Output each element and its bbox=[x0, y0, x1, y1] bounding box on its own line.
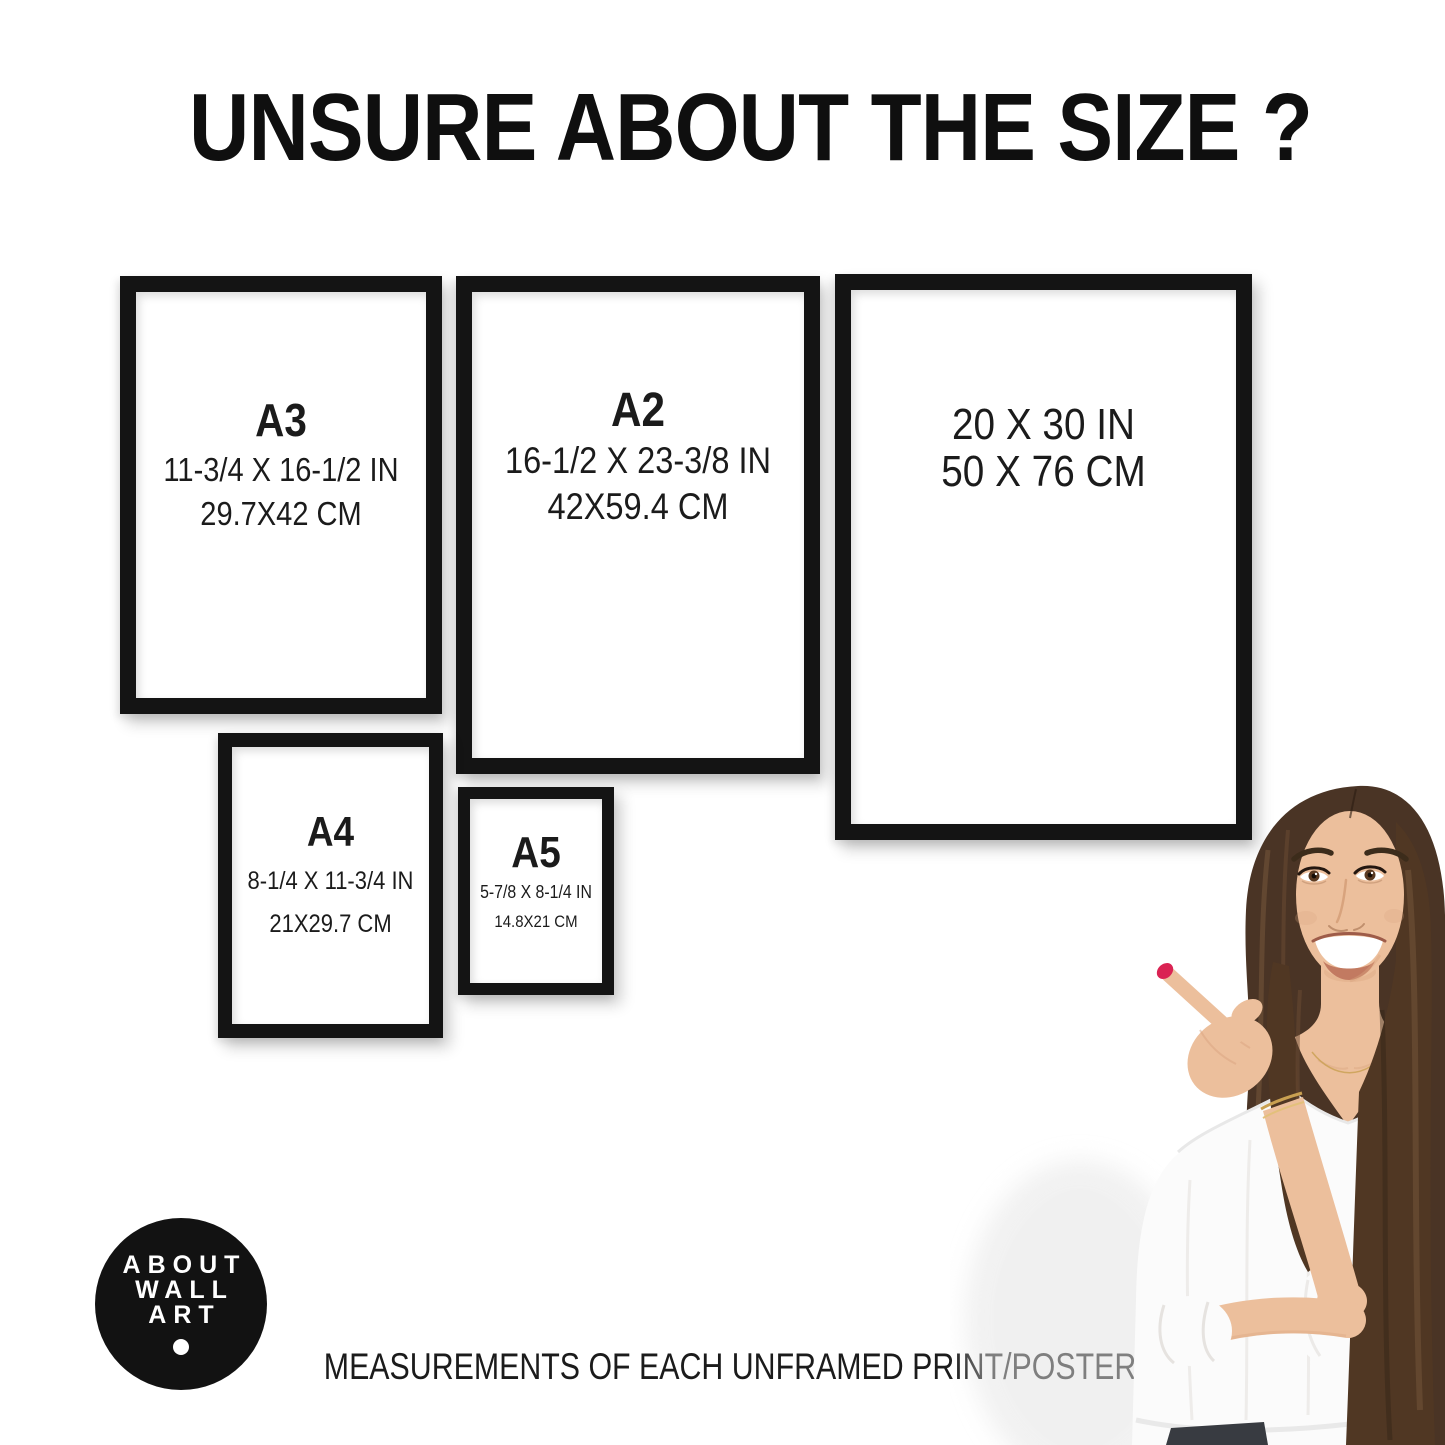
frame-a5: A5 5-7/8 X 8-1/4 IN 14.8X21 CM bbox=[458, 787, 614, 995]
frame-a3-text: A3 11-3/4 X 16-1/2 IN 29.7X42 CM bbox=[153, 292, 408, 535]
frame-a2-text: A2 16-1/2 X 23-3/8 IN 42X59.4 CM bbox=[492, 292, 784, 530]
size-inches: 5-7/8 X 8-1/4 IN bbox=[478, 882, 594, 903]
size-cm: 14.8X21 CM bbox=[478, 912, 594, 932]
size-inches: 16-1/2 X 23-3/8 IN bbox=[492, 438, 784, 484]
size-guide: UNSURE ABOUT THE SIZE ? A3 11-3/4 X 16-1… bbox=[0, 0, 1445, 1445]
size-inches: 11-3/4 X 16-1/2 IN bbox=[153, 448, 408, 492]
size-inches: 20 X 30 IN bbox=[874, 402, 1213, 449]
page-title: UNSURE ABOUT THE SIZE ? bbox=[122, 78, 1379, 179]
frame-20x30-text: 20 X 30 IN 50 X 76 CM bbox=[874, 290, 1213, 495]
size-cm: 50 X 76 CM bbox=[874, 449, 1213, 496]
frame-a2: A2 16-1/2 X 23-3/8 IN 42X59.4 CM bbox=[456, 276, 820, 774]
brand-logo: ABOUT WALL ART bbox=[95, 1218, 267, 1390]
frame-a5-text: A5 5-7/8 X 8-1/4 IN 14.8X21 CM bbox=[478, 799, 594, 932]
frame-a3: A3 11-3/4 X 16-1/2 IN 29.7X42 CM bbox=[120, 276, 442, 714]
logo-text-line: ABOUT bbox=[116, 1253, 247, 1278]
index-finger bbox=[1169, 975, 1236, 1036]
size-label: A2 bbox=[492, 386, 784, 436]
frame-20x30: 20 X 30 IN 50 X 76 CM bbox=[835, 274, 1252, 840]
size-cm: 29.7X42 CM bbox=[153, 492, 408, 536]
size-cm: 42X59.4 CM bbox=[492, 484, 784, 530]
size-label: A3 bbox=[153, 396, 408, 444]
size-cm: 21X29.7 CM bbox=[244, 910, 417, 939]
size-label: A4 bbox=[244, 811, 417, 853]
woman-pointing-illustration bbox=[950, 760, 1445, 1445]
frame-a4: A4 8-1/4 X 11-3/4 IN 21X29.7 CM bbox=[218, 733, 443, 1038]
woman-svg bbox=[950, 760, 1445, 1445]
size-label: A5 bbox=[478, 831, 594, 875]
logo-text-line: WALL bbox=[128, 1278, 234, 1303]
logo-dot-icon bbox=[173, 1339, 189, 1355]
frame-a4-text: A4 8-1/4 X 11-3/4 IN 21X29.7 CM bbox=[244, 747, 417, 939]
logo-text-line: ART bbox=[141, 1303, 220, 1328]
size-inches: 8-1/4 X 11-3/4 IN bbox=[244, 867, 417, 896]
footer-caption: MEASUREMENTS OF EACH UNFRAMED PRINT/POST… bbox=[324, 1346, 996, 1388]
